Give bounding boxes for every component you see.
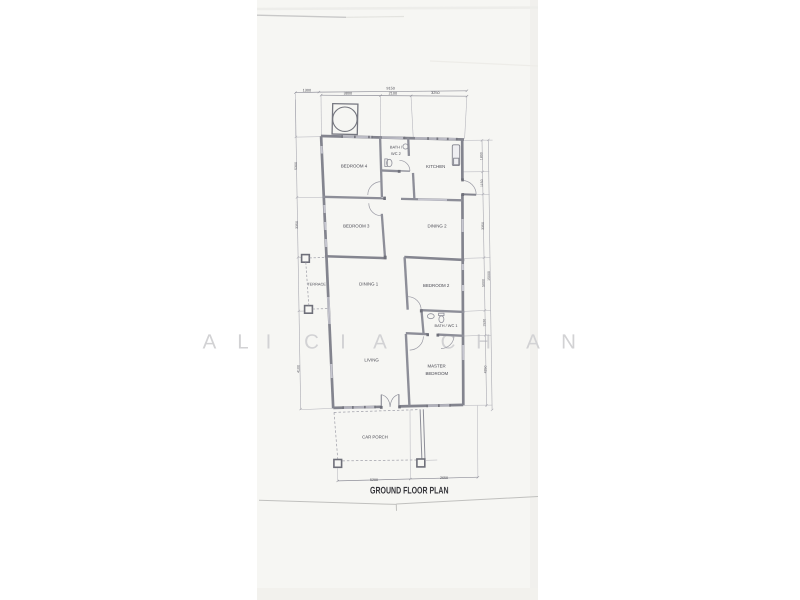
svg-text:WC 2: WC 2 — [391, 151, 401, 156]
svg-text:1520: 1520 — [482, 319, 486, 327]
svg-text:1300: 1300 — [303, 88, 311, 92]
svg-text:2100: 2100 — [389, 91, 397, 95]
svg-text:1800: 1800 — [480, 152, 484, 160]
svg-text:A: A — [526, 331, 540, 354]
svg-text:4100: 4100 — [296, 365, 300, 373]
svg-text:BATH /: BATH / — [390, 144, 403, 149]
svg-text:3350: 3350 — [295, 221, 299, 229]
svg-text:BEDROOM: BEDROOM — [425, 371, 448, 376]
svg-text:H: H — [476, 331, 491, 354]
svg-text:TERRACE: TERRACE — [307, 281, 326, 286]
svg-text:I: I — [266, 331, 272, 354]
svg-text:4350: 4350 — [483, 366, 487, 374]
svg-text:3350: 3350 — [481, 222, 485, 230]
svg-text:3800: 3800 — [344, 92, 352, 96]
svg-text:BEDROOM 3: BEDROOM 3 — [343, 224, 370, 229]
svg-text:BEDROOM 2: BEDROOM 2 — [423, 283, 450, 288]
svg-text:MASTER: MASTER — [427, 363, 445, 368]
svg-text:5000: 5000 — [482, 279, 486, 287]
svg-text:5200: 5200 — [370, 478, 378, 482]
svg-text:N: N — [561, 331, 576, 354]
svg-text:CAR PORCH: CAR PORCH — [362, 435, 388, 440]
svg-text:L: L — [237, 331, 248, 354]
svg-text:C: C — [304, 331, 319, 354]
svg-text:I: I — [340, 331, 346, 354]
svg-text:9150: 9150 — [386, 87, 394, 91]
svg-text:BEDROOM 4: BEDROOM 4 — [341, 163, 368, 168]
svg-text:DINING 2: DINING 2 — [427, 224, 447, 229]
svg-text:3250: 3250 — [431, 91, 439, 95]
svg-text:A: A — [373, 331, 387, 354]
svg-text:15000: 15000 — [487, 271, 491, 281]
svg-text:A: A — [203, 331, 217, 354]
svg-text:LIVING: LIVING — [364, 357, 379, 362]
svg-text:BATH / WC 1: BATH / WC 1 — [434, 323, 457, 328]
svg-text:2650: 2650 — [440, 476, 448, 480]
svg-text:5300: 5300 — [294, 162, 298, 170]
svg-text:GROUND FLOOR PLAN: GROUND FLOOR PLAN — [370, 485, 449, 496]
svg-text:1150: 1150 — [480, 179, 484, 187]
svg-text:KITCHEN: KITCHEN — [426, 164, 445, 169]
svg-text:DINING 1: DINING 1 — [359, 281, 379, 286]
